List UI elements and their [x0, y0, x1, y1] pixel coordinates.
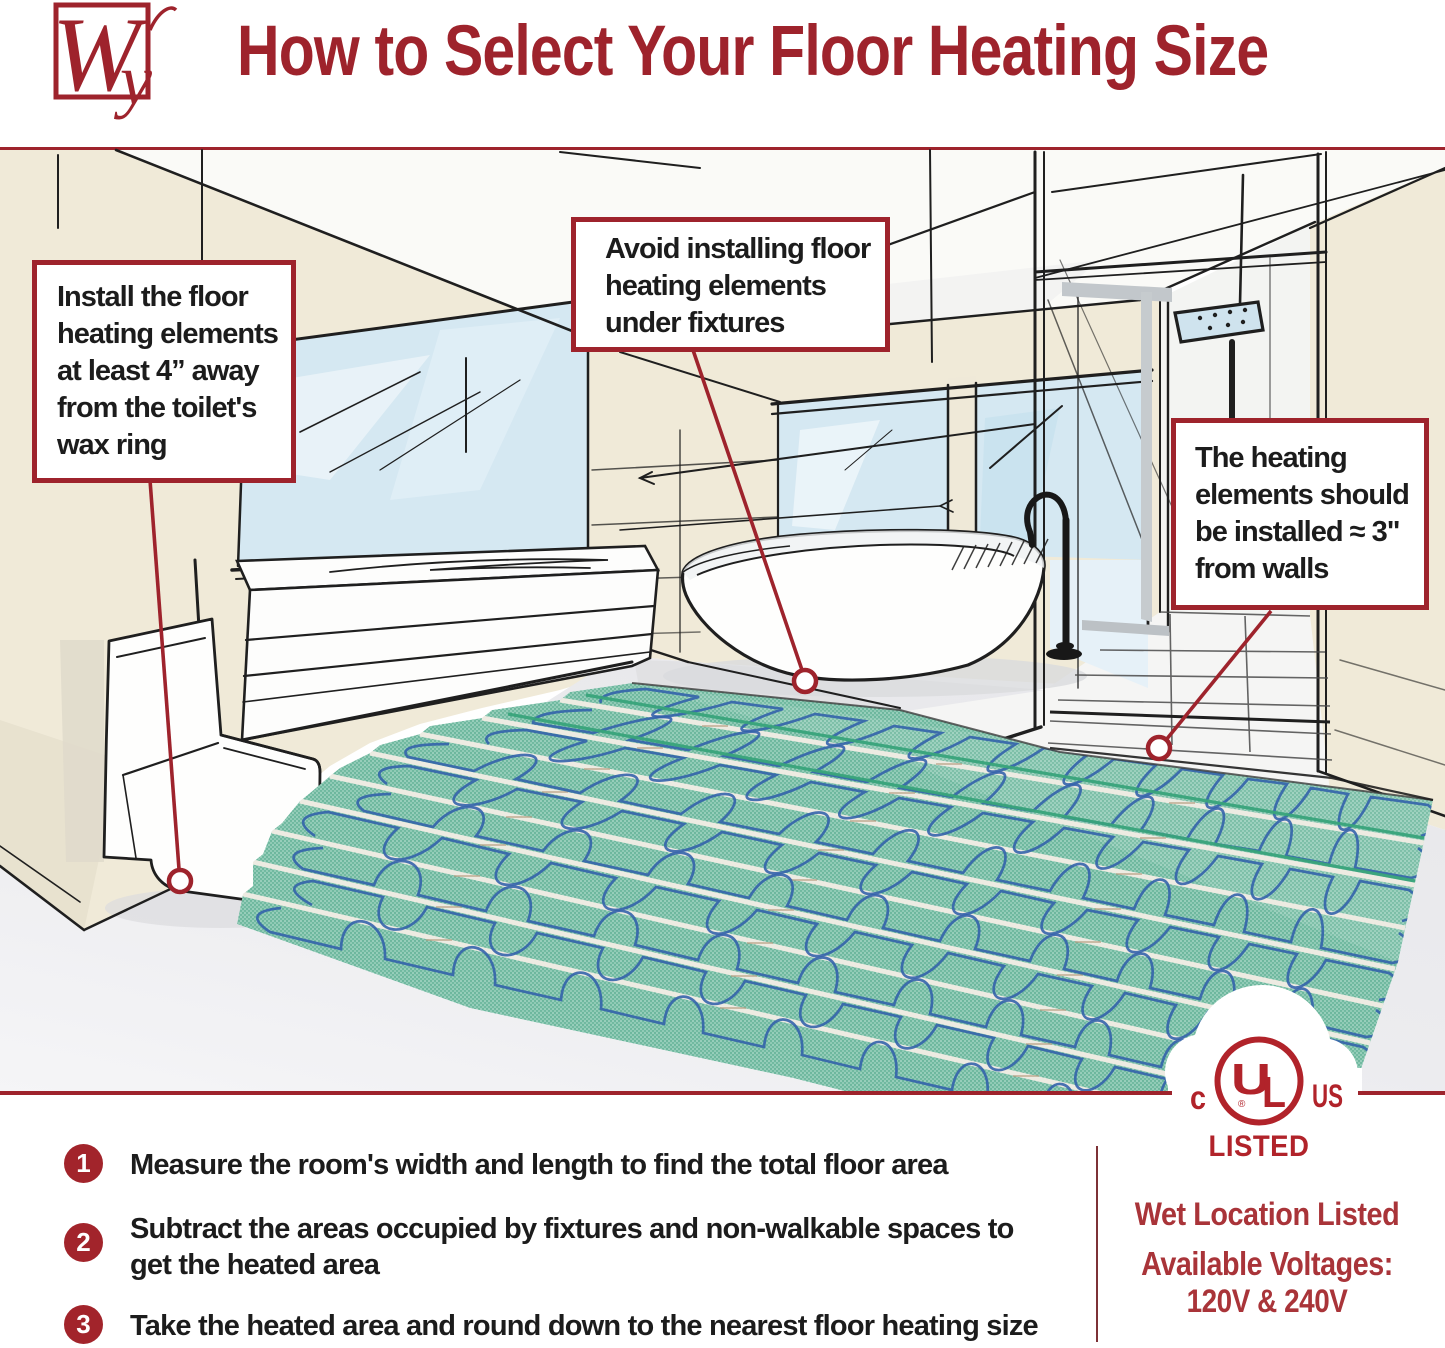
svg-text:®: ®	[1238, 1099, 1246, 1110]
svg-text:c: c	[1190, 1079, 1206, 1116]
svg-text:US: US	[1312, 1078, 1343, 1114]
svg-text:L: L	[1262, 1068, 1286, 1117]
